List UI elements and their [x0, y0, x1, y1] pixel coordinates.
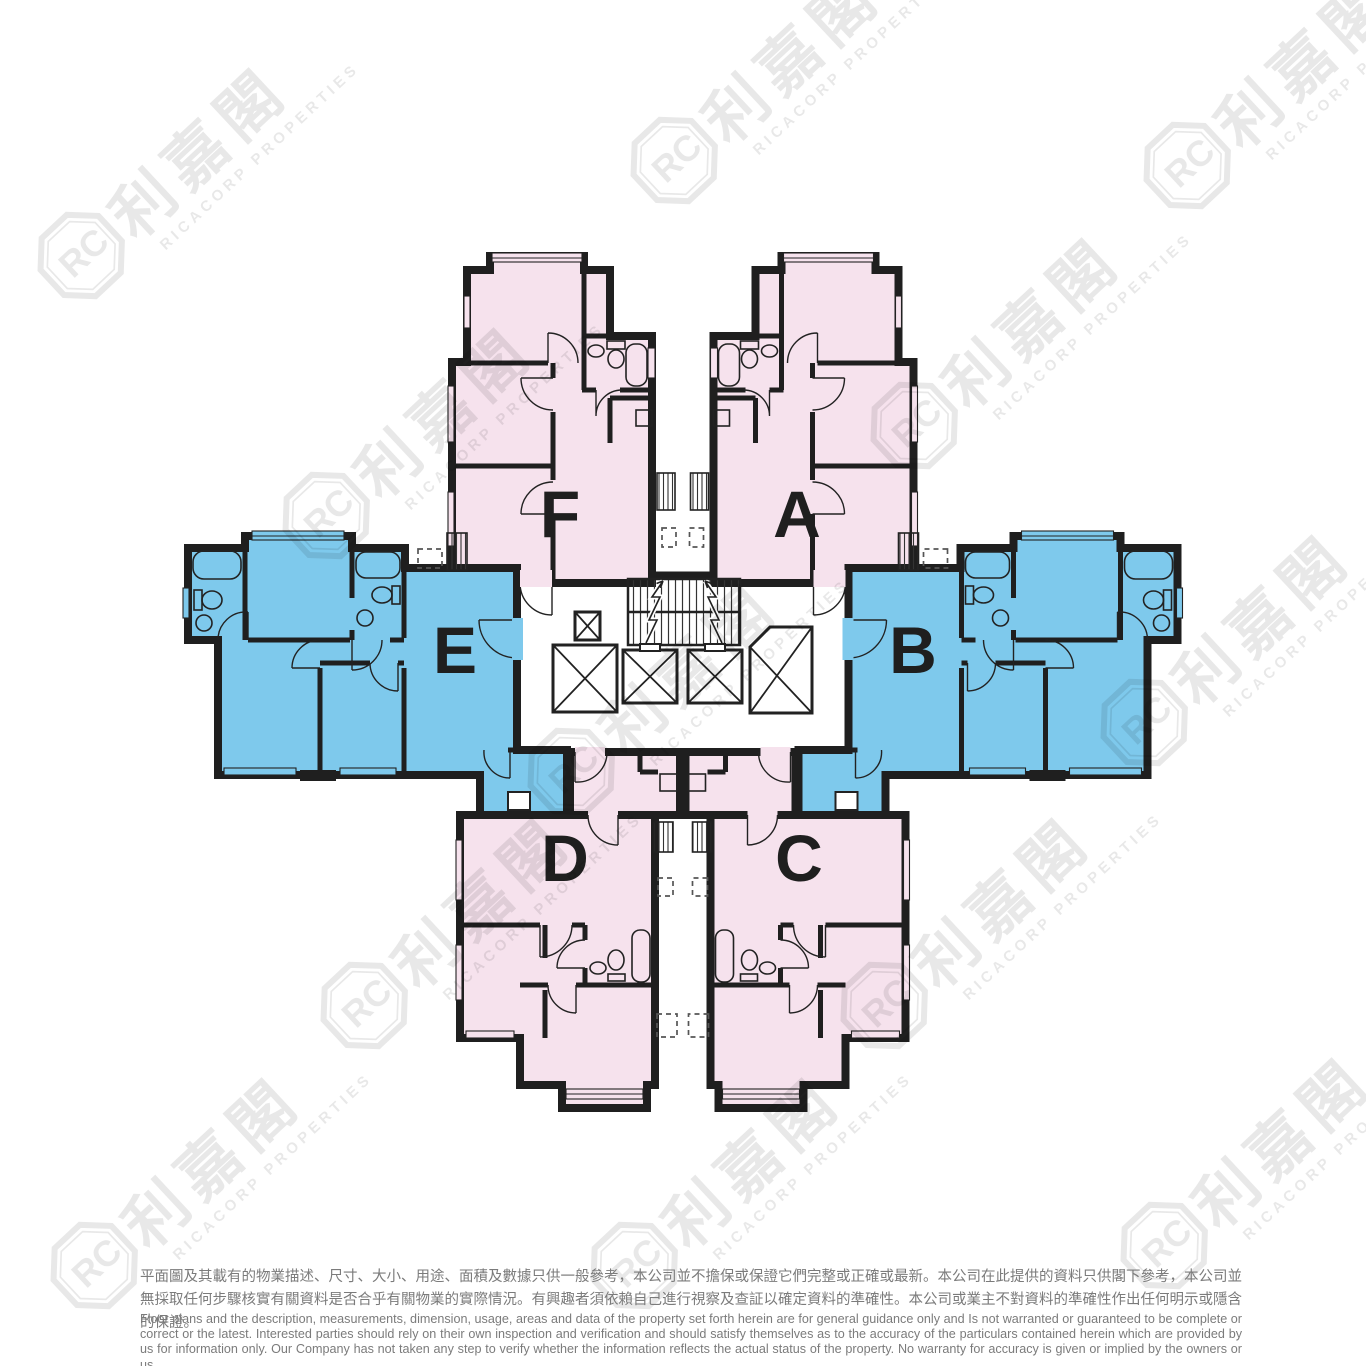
unit-label-f: F: [540, 477, 580, 551]
unit-e-area: [183, 531, 567, 817]
unit-label-d: D: [541, 821, 589, 895]
unit-label-a: A: [773, 477, 821, 551]
staircase: [628, 579, 740, 645]
floor-plan: F A E B D C: [0, 0, 1366, 1366]
floor-plan-page: RC 利嘉閣 RICACORP PROPERTIES RC利嘉閣RICACORP…: [0, 0, 1366, 1366]
unit-label-b: B: [889, 613, 937, 687]
disclaimer-english: Floor plans and the description, measure…: [140, 1312, 1242, 1366]
entry-hall: [570, 752, 680, 815]
balcony-window: [508, 792, 530, 810]
unit-label-e: E: [433, 613, 477, 687]
unit-f-area: [448, 253, 655, 615]
unit-label-c: C: [775, 821, 823, 895]
